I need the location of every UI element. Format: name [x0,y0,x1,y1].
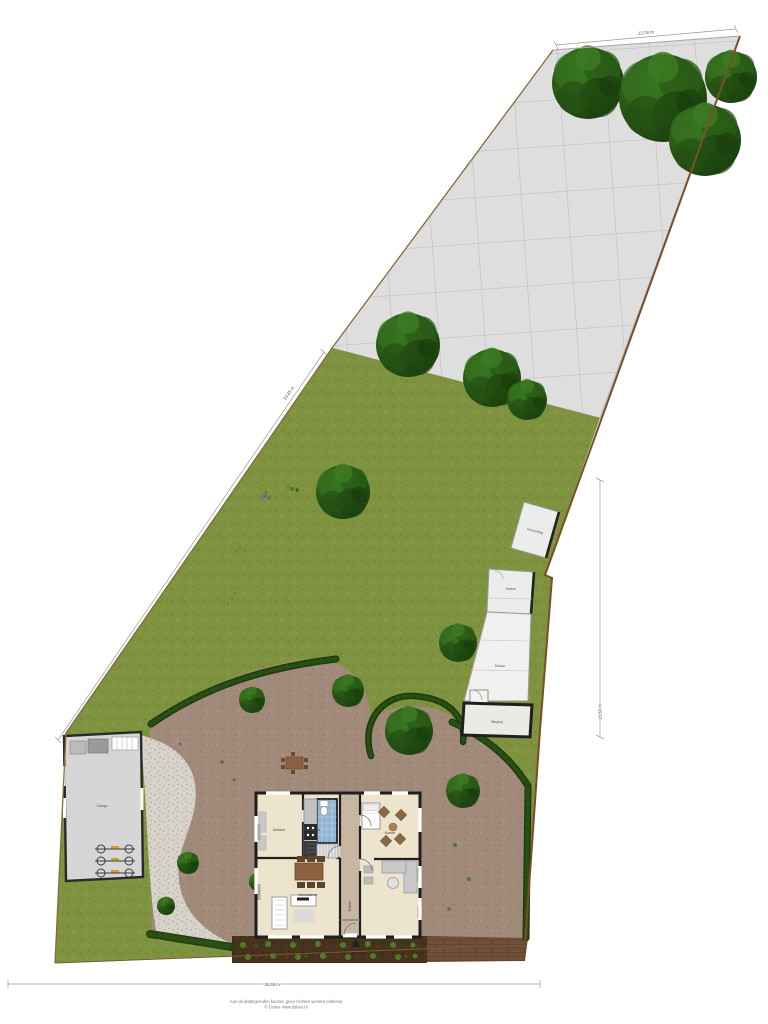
bathroom-label: Badkamer [304,828,321,832]
hall-label: Entree [348,901,352,912]
tree [239,686,265,713]
shed-upper-label: Schuur [506,587,517,591]
tree [376,311,440,377]
tree [669,102,741,176]
sideboard [272,897,287,929]
stove [304,824,317,840]
toilet-bowl [321,807,328,816]
garage-label: Garage [97,804,108,808]
disclaimer-text: Aan de plattegronden kunnen geen rechten… [230,999,343,1004]
dimension-right: 18.50 m [598,704,603,720]
site-plan-drawing: Houtopslag Schuur Schuur Berging Garage [0,0,768,1024]
counter-unit [304,841,317,857]
tree [157,897,175,915]
cabinet [88,739,108,753]
garage-window [140,788,143,810]
bathroom [317,799,337,843]
tree [507,379,547,420]
dimension-bottom: 36.38 m [264,982,280,987]
bedroom-label: Kamer [385,831,396,835]
house: Keuken Badkamer Kamer Woonkamer Entree [254,791,421,938]
brick-paving [427,936,528,962]
garage-window [63,798,66,818]
dimension-left: 33.65 m [282,385,295,401]
tree [439,623,477,662]
garage-building: Garage [63,732,144,881]
shelf-unit [112,737,138,750]
dimension-top: 13.28 m [638,29,655,35]
storage-label: Berging [491,720,503,724]
stairs [317,844,338,858]
copyright-text: © Dziner www.dziner.nl [264,1005,307,1010]
shed-lower-label: Schuur [495,664,506,668]
rug [294,909,314,923]
tree [316,464,370,519]
living-room-label: Woonkamer [298,893,318,897]
hallway-floor [340,795,360,936]
tree [705,50,757,103]
tree [552,45,624,119]
tree [177,851,199,874]
toilet-tank [320,801,328,807]
site-plan-page: Houtopslag Schuur Schuur Berging Garage [0,0,768,1024]
workbench [70,741,86,754]
kitchen-label: Keuken [273,828,285,832]
tree [332,674,364,707]
tree [446,773,480,808]
tree [385,706,433,755]
